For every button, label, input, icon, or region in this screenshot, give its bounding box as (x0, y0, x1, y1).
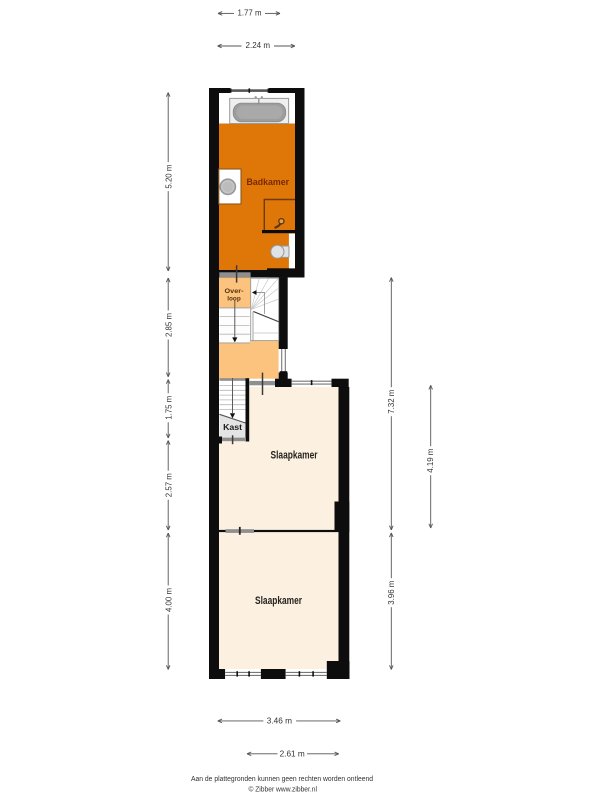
svg-text:Over-: Over- (225, 288, 244, 295)
svg-text:Kast: Kast (223, 422, 242, 432)
svg-text:7.32 m: 7.32 m (387, 390, 396, 414)
svg-text:4.00 m: 4.00 m (164, 588, 173, 612)
svg-text:Badkamer: Badkamer (247, 177, 290, 187)
svg-text:Aan de plattegronden kunnen ge: Aan de plattegronden kunnen geen rechten… (191, 776, 373, 783)
svg-text:3.46 m: 3.46 m (267, 717, 292, 726)
svg-text:1.75 m: 1.75 m (164, 396, 173, 420)
svg-text:2.57 m: 2.57 m (164, 473, 173, 497)
svg-text:4.19 m: 4.19 m (426, 449, 435, 473)
svg-text:2.61 m: 2.61 m (280, 749, 305, 758)
svg-text:3.96 m: 3.96 m (387, 581, 396, 605)
svg-text:2.85 m: 2.85 m (164, 313, 173, 337)
svg-text:2.24 m: 2.24 m (246, 41, 271, 50)
svg-text:1.77 m: 1.77 m (238, 9, 262, 18)
svg-text:5.20 m: 5.20 m (164, 164, 173, 188)
svg-text:loop: loop (227, 296, 241, 303)
svg-text:Slaapkamer: Slaapkamer (271, 450, 318, 462)
svg-text:© Zibber www.zibber.nl: © Zibber www.zibber.nl (248, 785, 317, 793)
svg-text:Slaapkamer: Slaapkamer (255, 595, 302, 607)
